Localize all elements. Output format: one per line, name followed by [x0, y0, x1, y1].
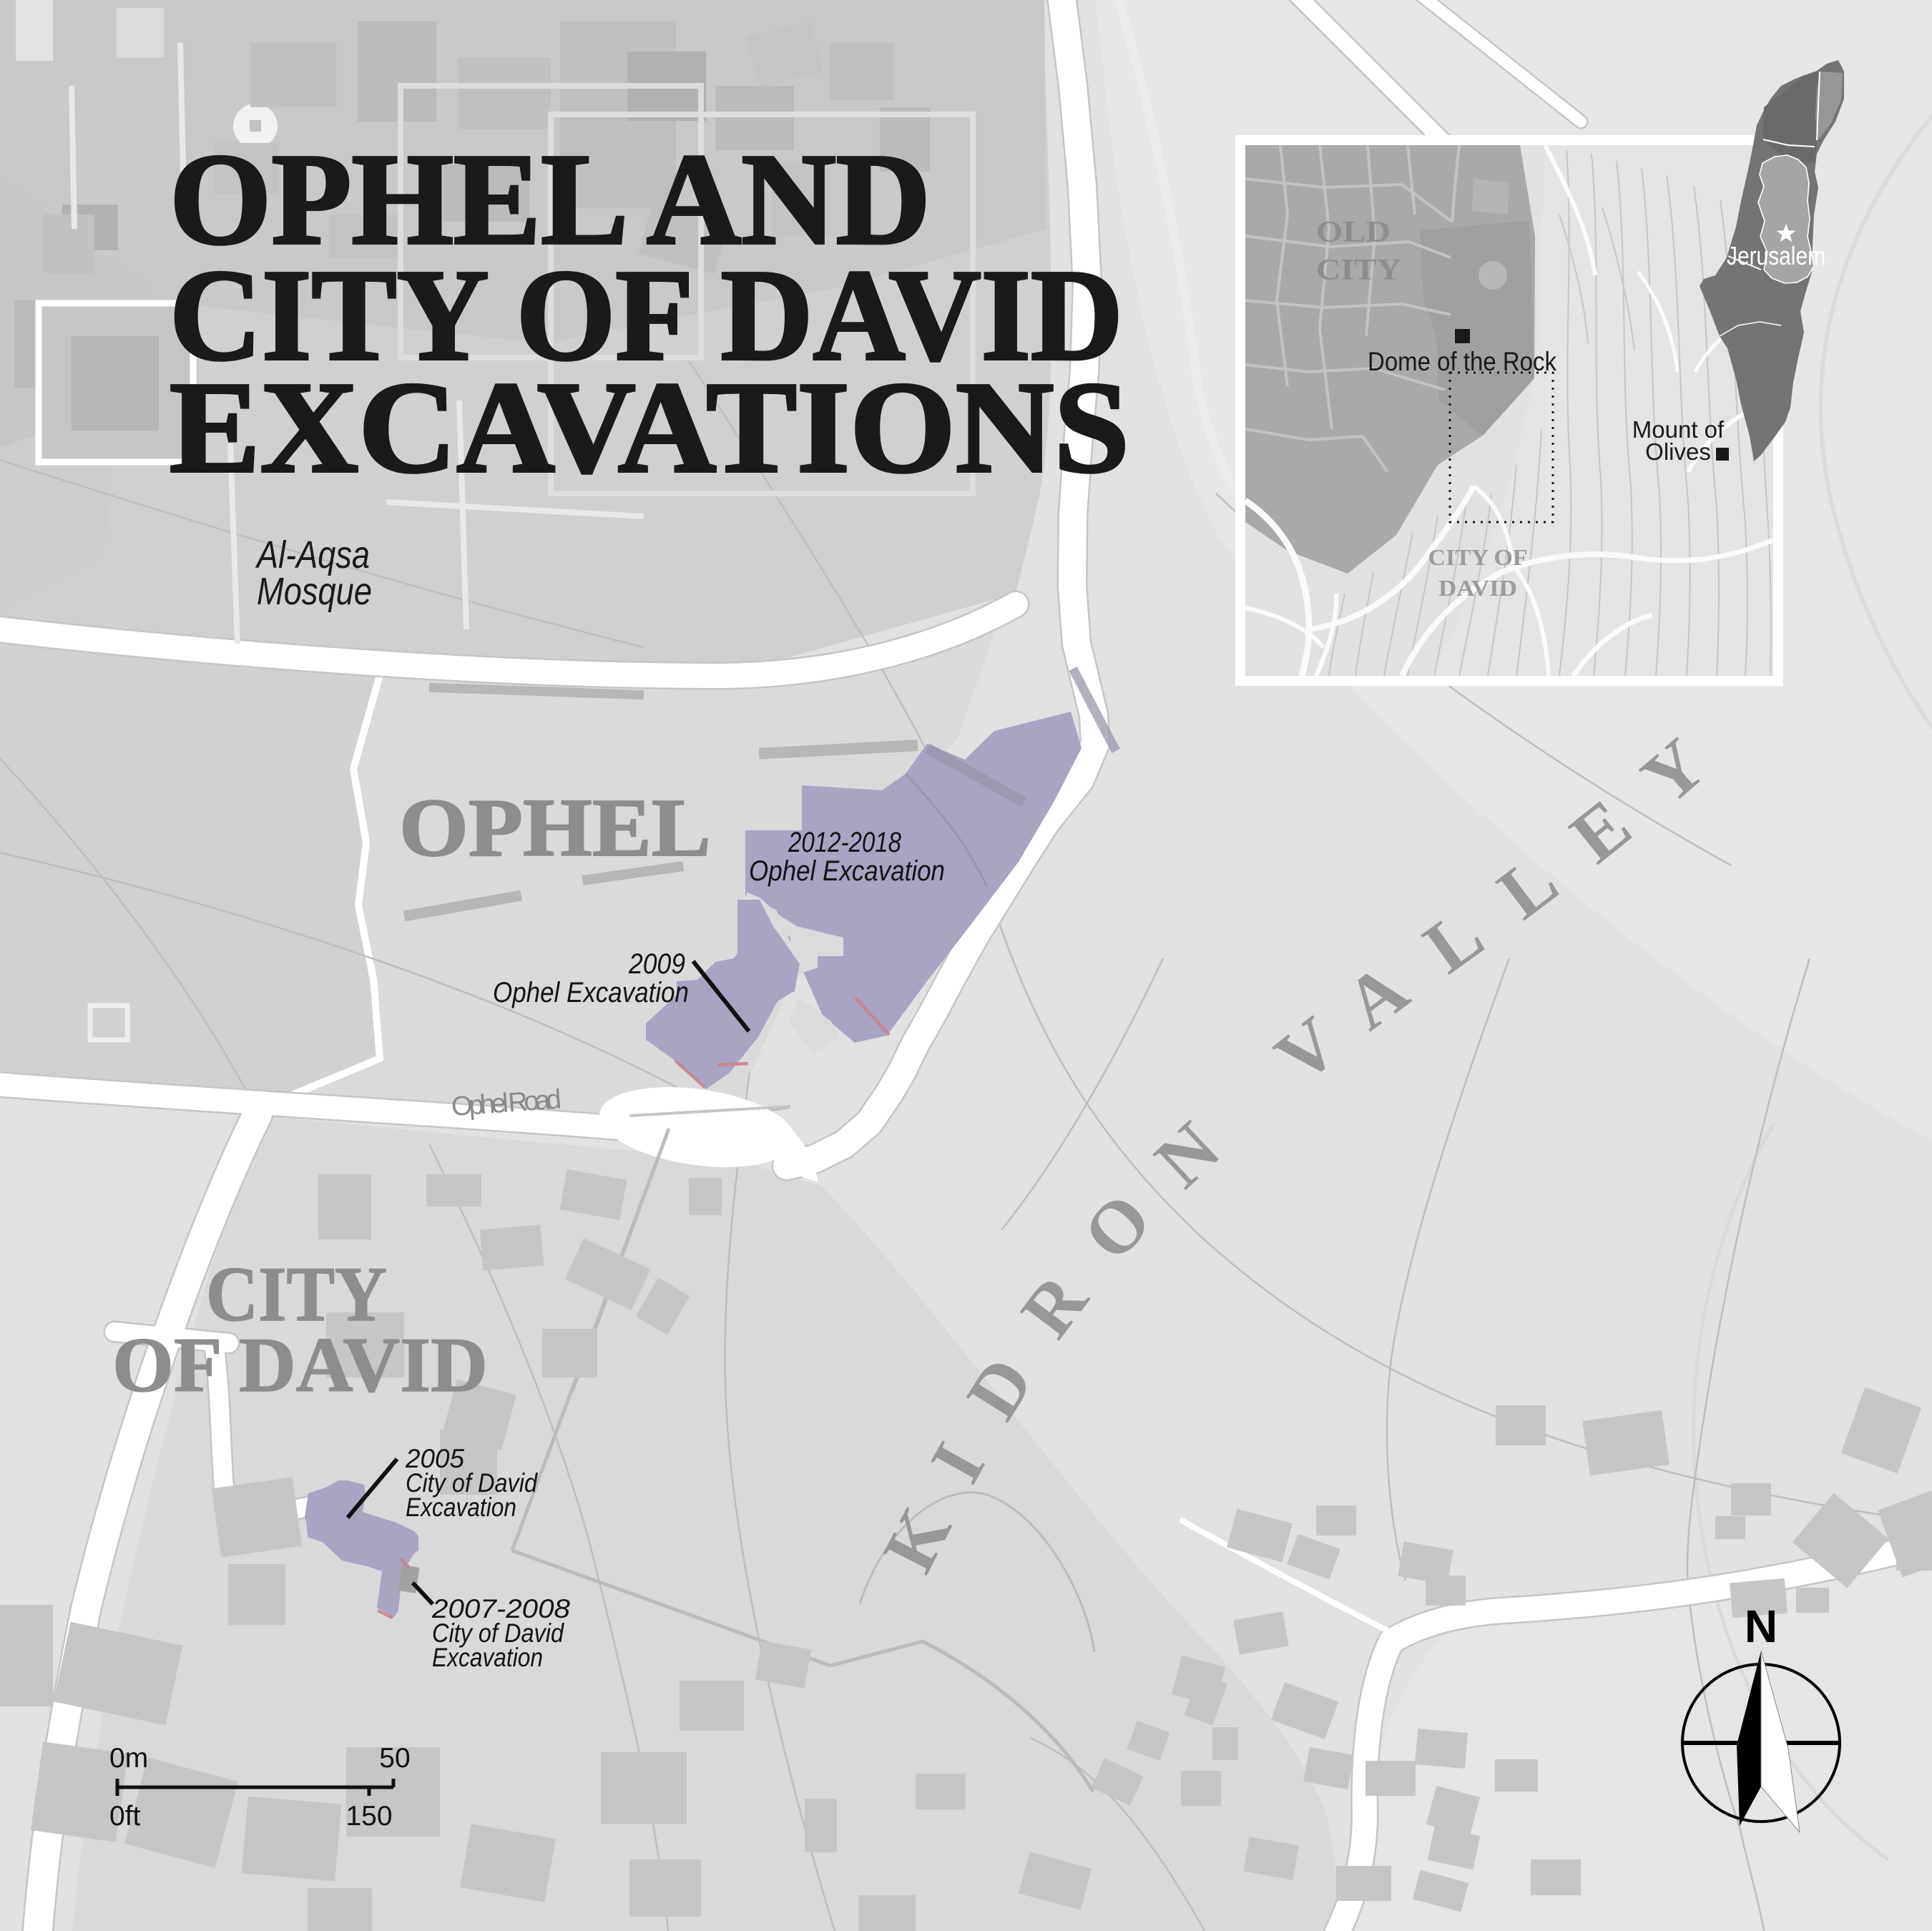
svg-text:OLD: OLD [1316, 216, 1391, 249]
svg-text:50: 50 [379, 1743, 410, 1774]
svg-text:Dome of the Rock: Dome of the Rock [1368, 347, 1556, 376]
svg-text:DAVID: DAVID [1438, 575, 1517, 601]
svg-text:2009: 2009 [628, 948, 685, 980]
svg-text:CITY OF: CITY OF [1428, 544, 1528, 570]
svg-text:Olives: Olives [1645, 438, 1711, 465]
svg-text:OPHEL: OPHEL [399, 782, 711, 873]
svg-text:N: N [1745, 1601, 1777, 1652]
svg-text:0ft: 0ft [109, 1801, 141, 1832]
svg-text:OF DAVID: OF DAVID [112, 1322, 488, 1408]
svg-text:150: 150 [345, 1801, 392, 1832]
svg-text:EXCAVATIONS: EXCAVATIONS [170, 355, 1129, 500]
svg-text:Ophel Excavation: Ophel Excavation [493, 977, 689, 1008]
svg-text:2012-2018: 2012-2018 [788, 827, 901, 858]
svg-text:Mosque: Mosque [257, 570, 372, 613]
svg-text:Ophel Excavation: Ophel Excavation [749, 855, 945, 887]
svg-text:Excavation: Excavation [406, 1493, 516, 1522]
svg-text:Excavation: Excavation [432, 1643, 543, 1672]
svg-text:CITY: CITY [1316, 254, 1401, 287]
svg-text:Jerusalem: Jerusalem [1727, 241, 1825, 270]
svg-text:0m: 0m [109, 1743, 148, 1774]
